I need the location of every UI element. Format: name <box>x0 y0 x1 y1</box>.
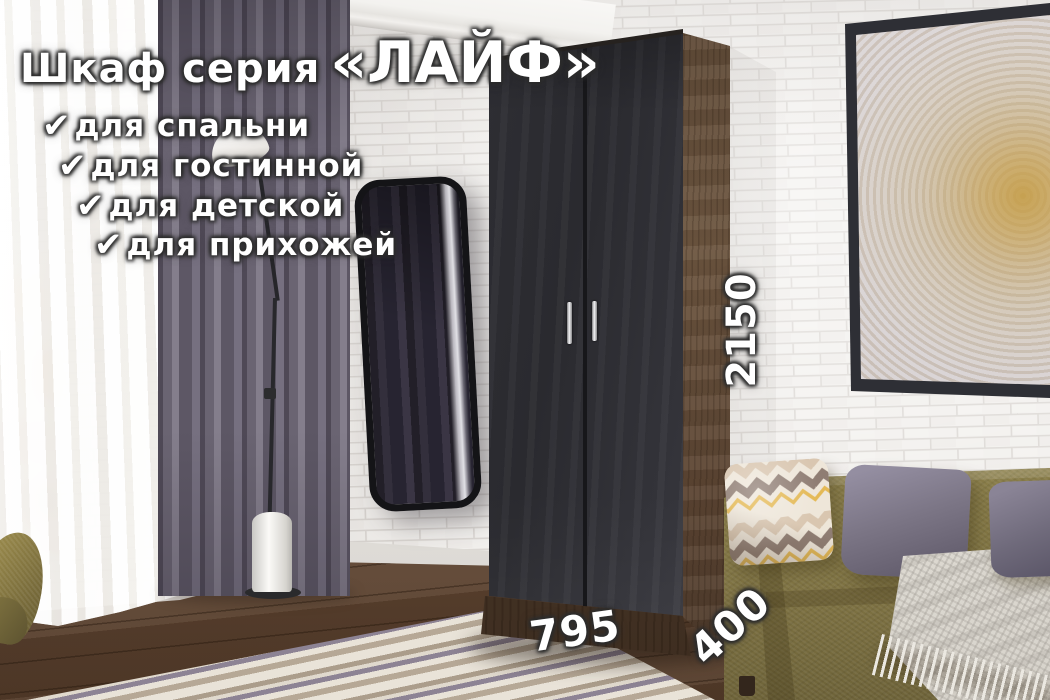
title-prefix: Шкаф серия <box>20 46 320 92</box>
check-icon: ✔ <box>42 106 72 146</box>
feature-label: для прихожей <box>127 227 398 263</box>
page-title: Шкаф серия «ЛАЙФ» <box>20 30 600 96</box>
feature-livingroom: ✔ для гостинной <box>58 146 363 186</box>
feature-label: для спальни <box>75 108 311 144</box>
floor-lamp-base <box>252 512 292 592</box>
product-photo-scene: Шкаф серия «ЛАЙФ» ✔ для спальни ✔ для го… <box>0 0 1050 700</box>
feature-hallway: ✔ для прихожей <box>94 225 397 265</box>
check-icon: ✔ <box>94 225 124 265</box>
check-icon: ✔ <box>58 146 88 186</box>
floor-lamp-joint <box>264 388 276 399</box>
title-series-name: «ЛАЙФ» <box>330 30 599 96</box>
sofa-foot <box>739 676 755 696</box>
feature-bedroom: ✔ для спальни <box>42 106 310 146</box>
feature-label: для детской <box>109 188 345 224</box>
pillow-zigzag <box>724 457 835 566</box>
feature-label: для гостинной <box>91 148 364 184</box>
feature-kidsroom: ✔ для детской <box>76 186 344 226</box>
door-handle-left <box>567 302 572 344</box>
pillow-shading <box>724 457 835 566</box>
check-icon: ✔ <box>76 186 106 226</box>
dimension-height-label: 2150 <box>719 272 765 387</box>
pillow-grey-right <box>988 478 1050 578</box>
door-handle-right <box>592 301 597 341</box>
